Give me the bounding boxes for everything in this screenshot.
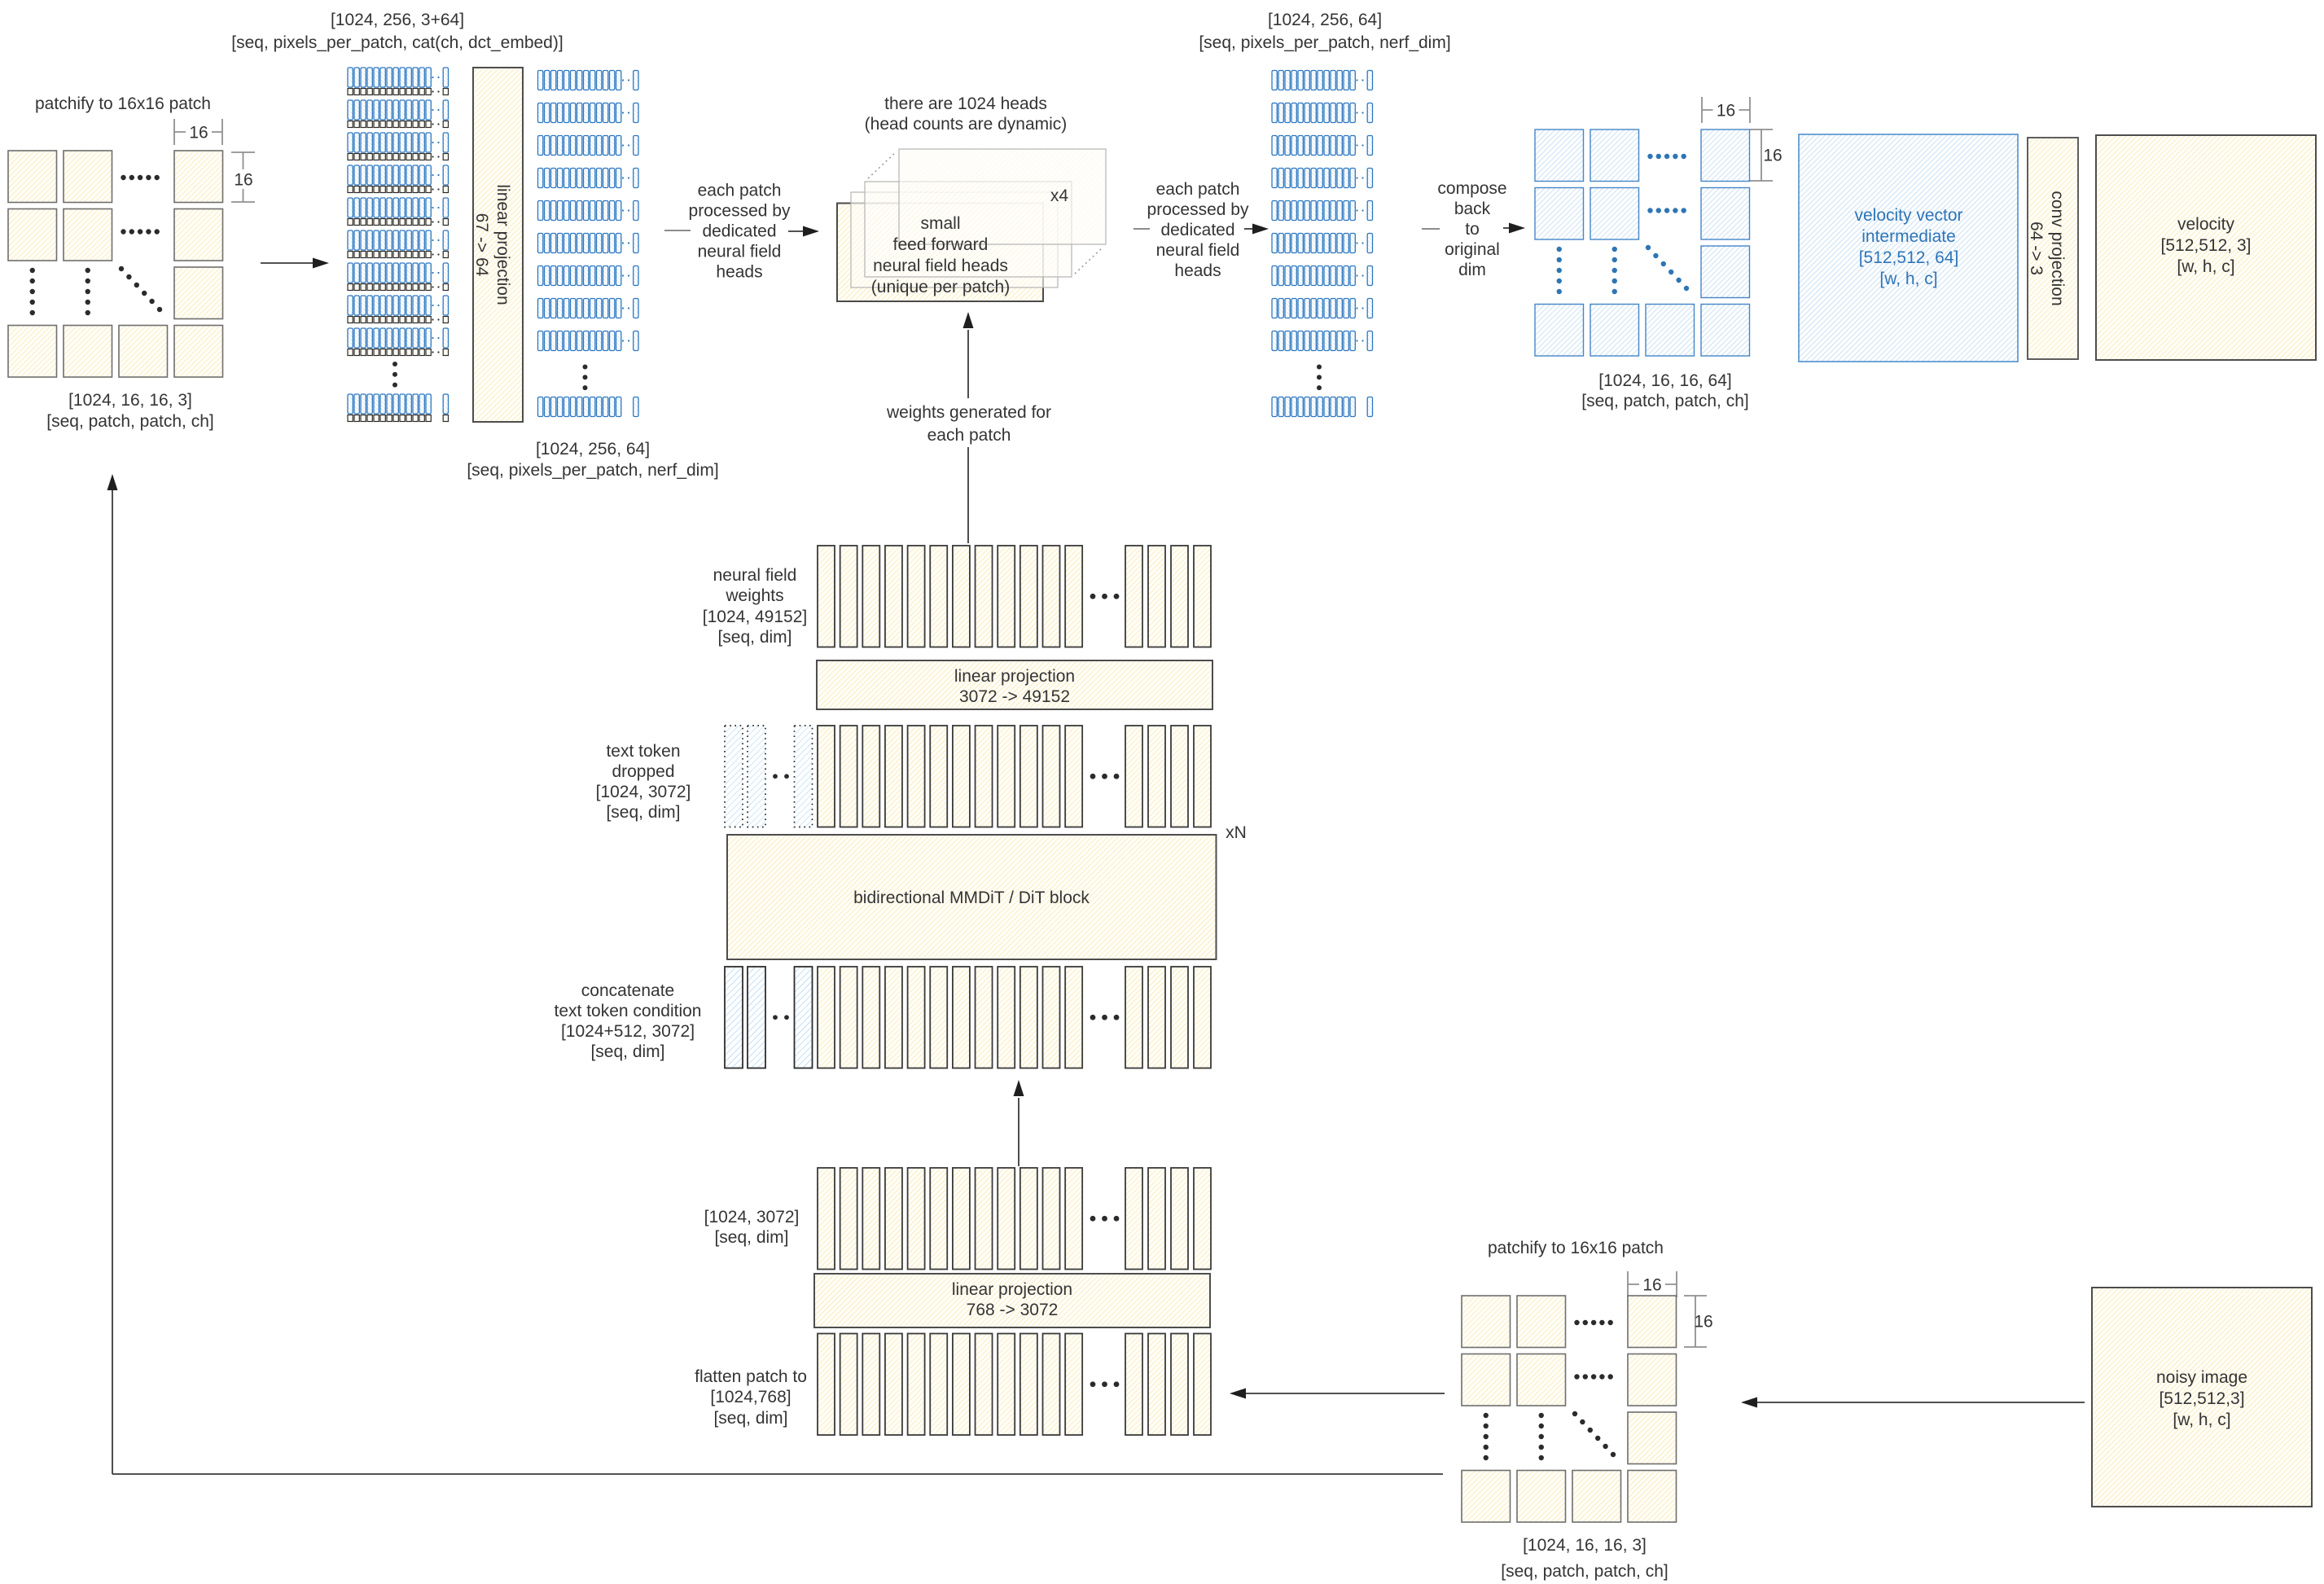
svg-text:linear projection: linear projection bbox=[952, 1280, 1072, 1299]
svg-text:noisy image: noisy image bbox=[2156, 1368, 2247, 1387]
svg-text:[1024, 16, 16, 3]: [1024, 16, 16, 3] bbox=[68, 391, 192, 410]
svg-text:[w, h, c]: [w, h, c] bbox=[2177, 257, 2234, 276]
svg-text:(unique per patch): (unique per patch) bbox=[871, 278, 1010, 296]
svg-text:each patch: each patch bbox=[1156, 180, 1240, 199]
svg-text:[512,512, 3]: [512,512, 3] bbox=[2161, 236, 2252, 255]
svg-text:[1024, 256, 64]: [1024, 256, 64] bbox=[1268, 11, 1382, 29]
svg-text:[1024, 3072]: [1024, 3072] bbox=[596, 783, 691, 801]
svg-text:there are 1024 heads: there are 1024 heads bbox=[884, 94, 1047, 113]
svg-text:flatten patch to: flatten patch to bbox=[695, 1367, 807, 1386]
svg-text:velocity vector: velocity vector bbox=[1854, 206, 1962, 225]
svg-text:x4: x4 bbox=[1050, 186, 1069, 205]
svg-text:neural field: neural field bbox=[1156, 241, 1240, 260]
svg-text:dropped: dropped bbox=[612, 762, 674, 781]
svg-text:dedicated: dedicated bbox=[1160, 221, 1234, 239]
svg-text:patchify to 16x16 patch: patchify to 16x16 patch bbox=[35, 94, 211, 113]
svg-text:text token condition: text token condition bbox=[555, 1002, 702, 1020]
svg-text:(head counts are dynamic): (head counts are dynamic) bbox=[865, 115, 1068, 134]
svg-text:original: original bbox=[1445, 240, 1500, 259]
svg-text:[seq, pixels_per_patch, nerf_d: [seq, pixels_per_patch, nerf_dim] bbox=[1199, 33, 1450, 52]
svg-text:[1024,768]: [1024,768] bbox=[710, 1388, 791, 1406]
svg-text:[512,512, 64]: [512,512, 64] bbox=[1859, 248, 1959, 267]
svg-text:to: to bbox=[1465, 220, 1480, 239]
svg-text:feed forward: feed forward bbox=[893, 235, 989, 254]
svg-text:16: 16 bbox=[1763, 147, 1782, 165]
svg-text:16: 16 bbox=[1717, 102, 1735, 121]
svg-text:16: 16 bbox=[1694, 1313, 1712, 1332]
svg-text:3072 -> 49152: 3072 -> 49152 bbox=[959, 687, 1070, 706]
svg-text:[seq, patch, patch, ch]: [seq, patch, patch, ch] bbox=[1501, 1562, 1668, 1581]
svg-text:each patch: each patch bbox=[698, 182, 782, 200]
svg-text:[w, h, c]: [w, h, c] bbox=[1879, 270, 1937, 288]
svg-text:heads: heads bbox=[716, 263, 762, 282]
svg-text:[1024, 256, 3+64]: [1024, 256, 3+64] bbox=[331, 11, 464, 29]
svg-text:[seq, dim]: [seq, dim] bbox=[590, 1042, 664, 1061]
svg-text:16: 16 bbox=[1642, 1276, 1661, 1295]
svg-text:[512,512,3]: [512,512,3] bbox=[2159, 1389, 2244, 1408]
svg-text:[seq, patch, patch, ch]: [seq, patch, patch, ch] bbox=[1581, 392, 1748, 410]
svg-text:[1024, 16, 16, 64]: [1024, 16, 16, 64] bbox=[1598, 371, 1731, 390]
svg-text:[seq, dim]: [seq, dim] bbox=[714, 1228, 788, 1247]
svg-text:[1024, 49152]: [1024, 49152] bbox=[703, 608, 807, 626]
svg-text:back: back bbox=[1454, 200, 1491, 218]
svg-text:intermediate: intermediate bbox=[1861, 227, 1956, 246]
svg-text:dim: dim bbox=[1458, 261, 1486, 279]
svg-text:[1024+512, 3072]: [1024+512, 3072] bbox=[561, 1022, 695, 1041]
svg-text:velocity: velocity bbox=[2177, 215, 2235, 234]
svg-text:[seq, patch, patch, ch]: [seq, patch, patch, ch] bbox=[46, 412, 213, 431]
svg-text:[seq, pixels_per_patch, cat(ch: [seq, pixels_per_patch, cat(ch, dct_embe… bbox=[231, 33, 563, 52]
svg-text:neural field heads: neural field heads bbox=[873, 257, 1008, 275]
svg-text:16: 16 bbox=[189, 124, 208, 143]
svg-text:small: small bbox=[920, 214, 960, 233]
svg-text:dedicated: dedicated bbox=[702, 222, 776, 241]
svg-text:[1024, 256, 64]: [1024, 256, 64] bbox=[536, 440, 650, 459]
svg-text:[1024, 3072]: [1024, 3072] bbox=[704, 1208, 800, 1226]
svg-text:heads: heads bbox=[1174, 261, 1221, 280]
svg-text:patchify to 16x16 patch: patchify to 16x16 patch bbox=[1488, 1239, 1664, 1257]
svg-text:processed by: processed by bbox=[1147, 200, 1249, 219]
svg-text:768 -> 3072: 768 -> 3072 bbox=[967, 1301, 1059, 1319]
svg-text:[seq, dim]: [seq, dim] bbox=[713, 1409, 787, 1428]
svg-text:[seq, dim]: [seq, dim] bbox=[606, 803, 680, 822]
svg-text:bidirectional MMDiT / DiT bloc: bidirectional MMDiT / DiT block bbox=[853, 889, 1090, 907]
svg-text:[1024, 16, 16, 3]: [1024, 16, 16, 3] bbox=[1523, 1536, 1647, 1555]
svg-text:each patch: each patch bbox=[927, 426, 1011, 445]
svg-text:[w, h, c]: [w, h, c] bbox=[2173, 1411, 2230, 1429]
svg-text:weights: weights bbox=[725, 586, 783, 605]
svg-text:linear projection: linear projection bbox=[954, 667, 1075, 686]
svg-text:weights generated for: weights generated for bbox=[886, 403, 1051, 422]
svg-text:xN: xN bbox=[1226, 823, 1247, 842]
svg-text:16: 16 bbox=[234, 171, 252, 190]
svg-text:processed by: processed by bbox=[689, 202, 791, 221]
svg-text:compose: compose bbox=[1437, 179, 1506, 198]
svg-text:text token: text token bbox=[606, 742, 680, 761]
svg-text:neural field: neural field bbox=[713, 566, 797, 585]
svg-text:concatenate: concatenate bbox=[581, 981, 674, 1000]
svg-text:[seq, pixels_per_patch, nerf_d: [seq, pixels_per_patch, nerf_dim] bbox=[467, 461, 718, 480]
svg-text:neural field: neural field bbox=[698, 243, 782, 261]
svg-text:[seq, dim]: [seq, dim] bbox=[717, 628, 791, 647]
